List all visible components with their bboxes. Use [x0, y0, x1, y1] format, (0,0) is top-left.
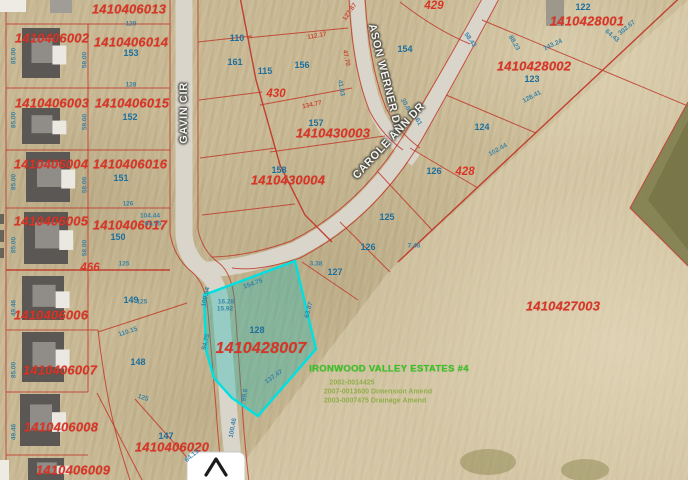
house	[22, 276, 70, 320]
road-gavin-cir	[184, 0, 236, 480]
houses	[20, 28, 75, 480]
house	[24, 212, 73, 264]
house	[22, 28, 66, 78]
house	[22, 108, 66, 144]
gis-parcel-map[interactable]: 1410406013141040600214104060141410406003…	[0, 0, 688, 480]
house	[20, 394, 66, 446]
map-canvas	[0, 0, 688, 480]
north-arrow	[187, 452, 245, 480]
house	[26, 152, 75, 202]
house	[28, 458, 71, 480]
house	[22, 332, 70, 382]
